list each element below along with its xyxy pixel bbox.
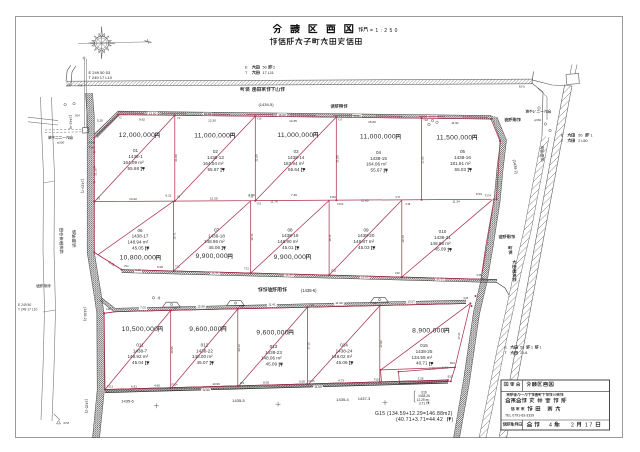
svg-text:183.94 m²: 183.94 m² xyxy=(283,161,304,166)
svg-text:45.01: 45.01 xyxy=(282,245,294,250)
svg-text:8,900,000: 8,900,000 xyxy=(412,328,444,335)
svg-text:1435-4: 1435-4 xyxy=(336,397,349,402)
svg-text:Y18: Y18 xyxy=(423,118,428,122)
svg-text:1438-25: 1438-25 xyxy=(416,349,433,354)
svg-text:11,000,000: 11,000,000 xyxy=(360,134,396,141)
svg-text:19.71: 19.71 xyxy=(250,233,254,241)
svg-text:B16: B16 xyxy=(450,361,455,365)
svg-text:148.87 m²: 148.87 m² xyxy=(353,239,374,244)
svg-text:7.02: 7.02 xyxy=(140,306,146,310)
svg-text:45.06: 45.06 xyxy=(336,360,348,365)
svg-text:1435-6: 1435-6 xyxy=(121,399,134,404)
svg-text:(1438-2): (1438-2) xyxy=(83,307,87,321)
svg-text:148.00 m²: 148.00 m² xyxy=(192,354,213,359)
svg-text:2 L50: 2 L50 xyxy=(578,139,587,143)
svg-text:1438-23: 1438-23 xyxy=(265,350,282,355)
svg-text:9,900,000: 9,900,000 xyxy=(274,254,306,261)
svg-text:11.80: 11.80 xyxy=(361,199,369,203)
svg-text:11,000,000: 11,000,000 xyxy=(277,132,313,139)
svg-text:TEL 0791-63-3339: TEL 0791-63-3339 xyxy=(505,414,534,418)
svg-text:F113: F113 xyxy=(107,384,113,388)
svg-text:11,000,000: 11,000,000 xyxy=(194,132,230,139)
svg-text:1438-24: 1438-24 xyxy=(336,348,353,353)
svg-text:B04: B04 xyxy=(75,113,80,117)
svg-text:134.59 m²: 134.59 m² xyxy=(411,355,432,360)
svg-text:17.21: 17.21 xyxy=(457,332,461,340)
svg-text:1438-19: 1438-19 xyxy=(282,233,299,238)
svg-text:45.04: 45.04 xyxy=(132,360,144,365)
svg-text:12.35: 12.35 xyxy=(289,119,297,123)
svg-text:(1439-5): (1439-5) xyxy=(258,102,274,107)
svg-text:8.05: 8.05 xyxy=(263,381,269,385)
svg-text:15.00: 15.00 xyxy=(368,120,376,124)
svg-text:10,800,000: 10,800,000 xyxy=(120,255,156,262)
svg-text:55.68: 55.68 xyxy=(128,166,140,171)
svg-text:50: 50 xyxy=(263,66,267,70)
svg-text:1438-15: 1438-15 xyxy=(370,156,387,161)
svg-text:F162: F162 xyxy=(330,195,337,199)
svg-text:10.57: 10.57 xyxy=(407,299,415,303)
svg-text:(1435-2): (1435-2) xyxy=(85,399,89,413)
svg-text:Y5: Y5 xyxy=(97,196,101,200)
svg-text:10.96: 10.96 xyxy=(212,382,220,386)
svg-text:21.00: 21.00 xyxy=(335,155,339,163)
svg-text:19.71: 19.71 xyxy=(173,232,177,240)
svg-text:45.09: 45.09 xyxy=(435,247,447,252)
svg-text:55.03: 55.03 xyxy=(455,167,467,172)
svg-text:F27: F27 xyxy=(373,301,378,305)
svg-text:φ300: φ300 xyxy=(57,140,64,144)
svg-text:7.46: 7.46 xyxy=(291,193,297,197)
svg-text:181.91 m²: 181.91 m² xyxy=(450,161,471,166)
svg-text:06: 06 xyxy=(137,228,143,233)
svg-text:1438-16: 1438-16 xyxy=(454,155,471,160)
svg-text:148.02 m²: 148.02 m² xyxy=(331,354,352,359)
svg-text:1: 1 xyxy=(540,346,542,350)
svg-text:1438-18: 1438-18 xyxy=(208,233,225,238)
svg-text:1 7: 1 7 xyxy=(585,423,592,429)
svg-text:1: 1 xyxy=(531,346,533,350)
svg-text:=1:250: =1:250 xyxy=(370,28,400,34)
svg-text:5.20: 5.20 xyxy=(97,118,103,122)
svg-text:9,900,000: 9,900,000 xyxy=(195,253,227,260)
svg-text:1.21: 1.21 xyxy=(442,366,448,370)
svg-text:07: 07 xyxy=(214,228,220,233)
svg-text:11.41: 11.41 xyxy=(268,303,276,307)
svg-text:排: 排 xyxy=(158,296,161,300)
svg-text:Y22: Y22 xyxy=(172,306,177,310)
svg-text:148.92 m²: 148.92 m² xyxy=(127,354,148,359)
svg-text:E 249 50: E 249 50 xyxy=(18,303,31,307)
svg-text:11.76: 11.76 xyxy=(270,199,278,203)
svg-text:19.73: 19.73 xyxy=(401,235,405,243)
svg-text:F163: F163 xyxy=(337,202,344,206)
svg-text:148.90 m²: 148.90 m² xyxy=(277,239,298,244)
svg-text:φ360: φ360 xyxy=(534,118,541,122)
svg-text:Y2: Y2 xyxy=(118,116,122,120)
svg-text:148.06 m²: 148.06 m² xyxy=(261,356,282,361)
svg-text:F17: F17 xyxy=(396,195,401,199)
svg-text:F115: F115 xyxy=(309,379,315,383)
svg-text:F20: F20 xyxy=(106,307,111,311)
svg-text:(1439-7): (1439-7) xyxy=(81,179,85,194)
svg-text:11,500,000: 11,500,000 xyxy=(436,134,472,141)
svg-text:19.95: 19.95 xyxy=(170,346,174,354)
svg-text:Y15: Y15 xyxy=(256,202,261,206)
svg-text:P11: P11 xyxy=(124,264,129,268)
svg-text:11.34: 11.34 xyxy=(452,200,460,204)
svg-text:013: 013 xyxy=(270,344,278,349)
svg-text:164.09 m²: 164.09 m² xyxy=(123,160,144,165)
svg-text:12,000,000: 12,000,000 xyxy=(119,132,155,139)
svg-text:50: 50 xyxy=(520,346,524,350)
svg-text:3.28: 3.28 xyxy=(418,376,424,380)
svg-text:1438-20: 1438-20 xyxy=(358,233,375,238)
svg-text:03: 03 xyxy=(293,149,299,154)
svg-text:2: 2 xyxy=(571,423,574,429)
svg-text:17.02: 17.02 xyxy=(379,340,383,348)
svg-text:1438-7: 1438-7 xyxy=(133,348,148,353)
svg-text:21.06: 21.06 xyxy=(421,156,425,164)
svg-text:F116: F116 xyxy=(374,377,380,381)
svg-text:(T11: (T11 xyxy=(331,269,337,273)
svg-text:012: 012 xyxy=(201,342,209,347)
svg-text:11.90: 11.90 xyxy=(335,301,343,305)
svg-text:1.73: 1.73 xyxy=(429,366,435,370)
svg-text:010: 010 xyxy=(439,229,447,234)
svg-text:11.91: 11.91 xyxy=(451,121,459,125)
svg-text:1438-1: 1438-1 xyxy=(128,154,143,159)
svg-text:1: 1 xyxy=(591,133,593,137)
svg-text:15.98: 15.98 xyxy=(197,304,205,308)
svg-text:05: 05 xyxy=(460,149,466,154)
svg-text:9,600,000: 9,600,000 xyxy=(256,329,288,336)
svg-text:01: 01 xyxy=(133,148,139,153)
svg-text:12.90: 12.90 xyxy=(202,388,210,392)
svg-text:Y23: Y23 xyxy=(309,303,314,307)
svg-text:Y3: Y3 xyxy=(177,116,181,120)
svg-text:55.67: 55.67 xyxy=(207,167,219,172)
svg-text:55.67: 55.67 xyxy=(371,167,383,172)
svg-text:T 249 17 L10: T 249 17 L10 xyxy=(89,75,113,80)
svg-text:164.06 m²: 164.06 m² xyxy=(366,162,387,167)
svg-text:10,500,000: 10,500,000 xyxy=(122,326,158,333)
svg-text:12.30: 12.30 xyxy=(210,197,218,201)
svg-text:13.32: 13.32 xyxy=(129,197,137,201)
svg-text:20.13: 20.13 xyxy=(237,344,241,352)
svg-text:1438-22: 1438-22 xyxy=(196,348,213,353)
svg-text:F146: F146 xyxy=(89,145,96,149)
svg-text:#38: #38 xyxy=(78,84,83,88)
svg-text:P148: P148 xyxy=(89,141,96,145)
svg-text:3.71: 3.71 xyxy=(419,402,425,406)
svg-text:08: 08 xyxy=(287,227,293,232)
svg-text:(40.71+3.71=44.42: (40.71+3.71=44.42 xyxy=(396,417,443,423)
svg-text:F45: F45 xyxy=(477,273,482,277)
svg-text:(P2: (P2 xyxy=(240,381,245,385)
svg-text:8.01: 8.01 xyxy=(476,192,482,196)
svg-text:17.15: 17.15 xyxy=(307,342,311,350)
svg-text:1435-5: 1435-5 xyxy=(232,398,245,403)
svg-text:015: 015 xyxy=(420,343,428,348)
svg-text:148.94 m²: 148.94 m² xyxy=(127,240,148,245)
svg-text:1438-21: 1438-21 xyxy=(434,235,451,240)
svg-text:40.71: 40.71 xyxy=(416,361,428,366)
svg-text:148.96 m²: 148.96 m² xyxy=(204,239,225,244)
svg-text:04: 04 xyxy=(376,150,382,155)
svg-text:45.06: 45.06 xyxy=(209,245,221,250)
svg-text:G15 (134.59+12.29=146.88m2): G15 (134.59+12.29=146.88m2) xyxy=(375,411,453,417)
svg-text:21.00: 21.00 xyxy=(174,154,178,162)
svg-text:148.88 m²: 148.88 m² xyxy=(430,241,451,246)
svg-text:F18: F18 xyxy=(406,202,411,206)
svg-text:9,600,000: 9,600,000 xyxy=(189,326,221,333)
svg-text:Y6: Y6 xyxy=(177,195,181,199)
svg-text:(1442-4): (1442-4) xyxy=(69,115,73,130)
svg-text:F28: F28 xyxy=(239,304,244,308)
svg-text:45.09: 45.09 xyxy=(266,362,278,367)
svg-text:6.05: 6.05 xyxy=(299,380,305,384)
svg-text:45.03: 45.03 xyxy=(358,245,370,250)
svg-text:1438-17: 1438-17 xyxy=(132,234,149,239)
svg-text:1438-14: 1438-14 xyxy=(288,155,305,160)
svg-text:4: 4 xyxy=(549,423,552,429)
svg-text:F25: F25 xyxy=(464,296,469,300)
svg-text:21.00: 21.00 xyxy=(255,154,259,162)
svg-text:4.73: 4.73 xyxy=(338,379,344,383)
svg-text:1438-13: 1438-13 xyxy=(207,155,224,160)
svg-text:50: 50 xyxy=(578,133,582,137)
svg-text:21.16: 21.16 xyxy=(94,168,98,176)
svg-text:F46: F46 xyxy=(395,271,400,275)
svg-text:014: 014 xyxy=(340,342,348,347)
svg-text:T12: T12 xyxy=(175,265,180,269)
svg-text:6.21: 6.21 xyxy=(165,194,171,198)
svg-text:4058: 4058 xyxy=(63,421,70,425)
svg-text:Y16: Y16 xyxy=(257,117,262,121)
svg-text:F17A: F17A xyxy=(485,194,492,198)
svg-text:6.61: 6.61 xyxy=(131,384,137,388)
svg-text:9.62: 9.62 xyxy=(139,118,145,122)
svg-text:11.90: 11.90 xyxy=(314,385,322,389)
svg-text:45.07: 45.07 xyxy=(197,360,209,365)
svg-text:F16: F16 xyxy=(249,194,254,198)
svg-text:4.60: 4.60 xyxy=(154,384,160,388)
svg-text:T 249 17 L10: T 249 17 L10 xyxy=(18,308,38,312)
svg-text:F114: F114 xyxy=(172,383,178,387)
svg-text:(1438-6): (1438-6) xyxy=(301,288,317,293)
svg-text:B141: B141 xyxy=(519,85,526,89)
svg-text:2: 2 xyxy=(273,66,275,70)
svg-text:T13: T13 xyxy=(244,267,249,271)
svg-text:17 L11: 17 L11 xyxy=(263,71,274,75)
svg-text:02: 02 xyxy=(213,149,219,154)
svg-text:2 L6: 2 L6 xyxy=(520,351,527,355)
svg-text:09: 09 xyxy=(363,227,369,232)
svg-text:011: 011 xyxy=(136,342,144,347)
svg-text:12.30: 12.30 xyxy=(208,118,216,122)
svg-text:B15: B15 xyxy=(448,375,453,379)
svg-text:1437-3: 1437-3 xyxy=(358,396,371,401)
svg-text:Y17: Y17 xyxy=(338,117,343,121)
svg-text:45.05: 45.05 xyxy=(132,245,144,250)
svg-text:55.64: 55.64 xyxy=(288,167,300,172)
svg-text:6.06: 6.06 xyxy=(157,265,163,269)
svg-text:164.04 m²: 164.04 m² xyxy=(203,161,224,166)
svg-text:19.71: 19.71 xyxy=(328,234,332,242)
svg-text:99: 99 xyxy=(553,393,557,397)
